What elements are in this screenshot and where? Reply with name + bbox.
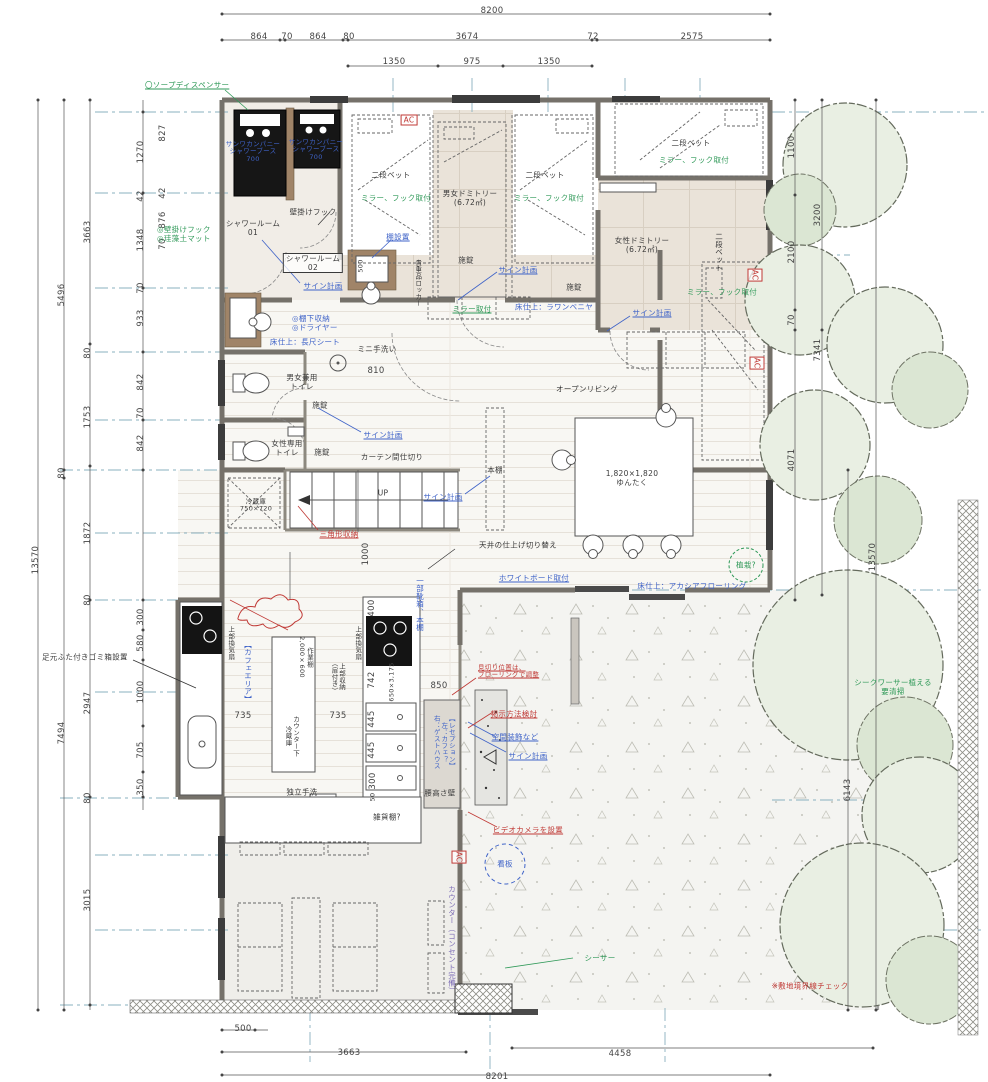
room-shower-01: シャワールーム 01 <box>226 219 280 237</box>
dimension-label: 80 <box>83 347 93 358</box>
note-whiteboard: ホワイトボード取付 <box>499 574 569 583</box>
ac-unit: AC <box>452 851 467 864</box>
dimension-label: 1753 <box>83 406 93 429</box>
furniture-valuables-locker: 貴重品ロッカー <box>413 259 420 307</box>
note-sign-plan: サイン計画 <box>424 493 463 502</box>
stair-up: UP <box>378 489 389 498</box>
note-lock: 施錠 <box>314 448 330 457</box>
floor-plan-canvas: 8200864708648036747225751350975135013570… <box>0 0 988 1082</box>
dimension-label: 80 <box>343 32 354 42</box>
note-sign-plan: サイン計画 <box>633 309 672 318</box>
dimension-label: 1270 <box>136 141 146 164</box>
dimension-label: 975 <box>463 57 480 67</box>
note-lock: 施錠 <box>458 256 474 265</box>
note-curtain-partition: カーテン間仕切り <box>361 453 423 462</box>
dimension-label: 5496 <box>57 284 67 307</box>
note-waist-wall: 腰高さ壁 <box>424 789 455 798</box>
note-lock: 施錠 <box>312 401 328 410</box>
dimension-label: 3674 <box>456 32 479 42</box>
dimension-label: 742 <box>367 671 377 688</box>
note-sign-plan: サイン計画 <box>509 752 548 761</box>
note-signboard: 看板 <box>497 860 513 869</box>
dimension-label: 580 <box>136 634 146 651</box>
note-lock: 施錠 <box>566 283 582 292</box>
note-shoebox-bookshelf: 一部靴箱、本棚 <box>416 577 425 632</box>
furniture-undercounter-fridge: カウンター下 冷蔵庫 <box>284 716 299 757</box>
dimension-label: 70 <box>136 407 146 418</box>
room-womens-dormitory: 女性ドミトリー (6.72㎡) <box>615 236 670 254</box>
note-shisa: シーサー <box>584 954 615 963</box>
note-soap-dispenser: 〇ソープディスペンサー <box>145 81 229 90</box>
dimension-label: 7494 <box>57 722 67 745</box>
dimension-label: 3663 <box>338 1048 361 1058</box>
note-mirror-hook: ミラー、フック取付 <box>361 194 431 203</box>
dimension-label: 850 <box>430 681 447 691</box>
note-floor-sheet: 床仕上：長尺シート <box>270 338 340 347</box>
dimension-label: 300 <box>368 772 378 789</box>
room-shower-02: シャワールーム 02 <box>283 253 343 273</box>
dimension-label: 842 <box>136 373 146 390</box>
ac-unit: AC <box>748 269 763 282</box>
dimension-label: 6143 <box>843 779 853 802</box>
dimension-label: 3663 <box>83 221 93 244</box>
dimension-label: 72 <box>587 32 598 42</box>
furniture-fridge: 冷蔵庫 750×720 <box>240 499 272 514</box>
dimension-label: 864 <box>309 32 326 42</box>
dimension-label: 1350 <box>383 57 406 67</box>
dimension-label: 500 <box>234 1024 251 1034</box>
dimension-label: 1000 <box>136 681 146 704</box>
dimension-label: 705 <box>136 741 146 758</box>
furniture-work-shelf: 作業棚 2,000×600 <box>298 636 313 678</box>
dimension-label: 1100 <box>787 136 797 159</box>
dimension-label: 500 <box>357 259 364 272</box>
dimension-label: 842 <box>136 434 146 451</box>
note-ceiling-finish: 天井の仕上げ切り替え <box>479 541 557 550</box>
note-wall-hook: 壁掛けフック <box>290 208 337 217</box>
note-floor-lauan: 床仕上：ラワンベニヤ <box>515 303 593 312</box>
dimension-label: 400 <box>367 599 377 616</box>
dimension-label: 735 <box>234 711 251 721</box>
dimension-label: 80 <box>83 792 93 803</box>
note-mini-sink: ミニ手洗い <box>358 345 397 354</box>
dimension-label: 80 <box>83 594 93 605</box>
dimension-label: 2100 <box>787 241 797 264</box>
dimension-label: 2575 <box>681 32 704 42</box>
note-standalone-sink: 独立手洗 <box>286 788 317 797</box>
furniture-bookshelf: 本棚 <box>487 466 503 475</box>
note-shower-booth: サンワカンパニー シャワーブース 700 <box>226 141 280 163</box>
dimension-label: 42 <box>136 190 146 201</box>
note-trash-bin: 足元ふた付きゴミ箱設置 <box>42 653 128 662</box>
furniture-goods-shelf: 雑貨棚? <box>373 813 401 822</box>
note-counter-outlets: カウンター（コンセント完備） <box>448 885 457 994</box>
dimension-label: 300 <box>136 608 146 625</box>
note-decoration: 空間装飾など <box>492 733 539 742</box>
dimension-label: 70 <box>281 32 292 42</box>
ac-unit: AC <box>401 115 418 126</box>
dimension-label: 1348 <box>136 229 146 252</box>
furniture-bunk-bed: 二段ベット <box>526 171 565 180</box>
note-planting: 植栽? <box>736 561 756 570</box>
note-floor-acacia: 床仕上：アカシアフローリング <box>637 582 746 591</box>
dimension-label: 827 <box>158 124 168 141</box>
room-mixed-dormitory: 男女ドミトリー (6.72㎡) <box>443 189 498 207</box>
note-video-camera: ビデオカメラを設置 <box>493 826 563 835</box>
note-triangle-storage: 三角形収納 <box>320 530 359 539</box>
dimension-label: 42 <box>158 187 168 198</box>
dimension-label: 445 <box>367 741 377 758</box>
note-sign-plan: サイン計画 <box>304 282 343 291</box>
note-mirror: ミラー取付 <box>453 305 492 314</box>
note-shequasar-tree: シークワーサー植える 要清掃 <box>854 678 932 696</box>
dimension-label: 8201 <box>486 1072 509 1082</box>
furniture-yuntaku-table: 1,820×1,820 ゆんたく <box>606 469 659 487</box>
dimension-label: 50 <box>369 793 376 802</box>
dimension-label: 3200 <box>813 204 823 227</box>
dimension-label: 70 <box>787 314 797 325</box>
dimension-label: 650×3,175 <box>388 662 395 701</box>
dimension-label: 80 <box>57 467 67 478</box>
dimension-label: 7341 <box>813 339 823 362</box>
room-cafe-area: 【カフェエリア】 <box>244 641 253 703</box>
dimension-label: 2947 <box>83 692 93 715</box>
note-sign-plan: サイン計画 <box>499 266 538 275</box>
dimension-label: 810 <box>367 366 384 376</box>
dimension-label: 70 <box>136 282 146 293</box>
dim-top-total: 8200 <box>481 6 504 16</box>
dimension-label: 1000 <box>361 543 371 566</box>
dimension-label: 350 <box>136 778 146 795</box>
note-mirror-hook: ミラー、フック取付 <box>514 194 584 203</box>
note-under-shelf-dryer: ◎棚下収納 ◎ドライヤー <box>292 314 338 332</box>
note-shower-booth: サンワカンパニー シャワーブース 700 <box>289 139 343 161</box>
furniture-bunk-bed: 二段ベット <box>715 233 724 272</box>
note-hook-mat: ◎壁掛けフック ◎珪藻土マット <box>157 225 211 243</box>
dimension-label: 1872 <box>83 522 93 545</box>
dimension-label: 735 <box>329 711 346 721</box>
dim-left-total: 13570 <box>31 546 41 575</box>
room-unisex-toilet: 男女兼用 トイレ <box>286 373 317 391</box>
dimension-label: 4071 <box>787 449 797 472</box>
annotation-layer: 8200864708648036747225751350975135013570… <box>0 0 988 1082</box>
room-womens-toilet: 女性専用 トイレ <box>271 439 302 457</box>
dimension-label: 3015 <box>83 889 93 912</box>
dimension-label: 445 <box>367 710 377 727</box>
dimension-label: 864 <box>250 32 267 42</box>
note-display-method: 掲示方法検討 <box>491 710 538 719</box>
note-mirror-hook: ミラー、フック取付 <box>687 288 757 297</box>
note-shelf: 棚設置 <box>386 233 409 242</box>
note-flooring-joint: 見切り位置は、 フローリングで調整 <box>478 665 539 680</box>
dimension-label: 4458 <box>609 1049 632 1059</box>
room-reception: 【レセプション】 左：カフェ？ 右：ゲストハウス <box>432 715 454 769</box>
room-open-living: オープンリビング <box>556 385 618 394</box>
furniture-bunk-bed: 二段ベット <box>372 171 411 180</box>
note-mirror-hook: ミラー、フック取付 <box>659 156 729 165</box>
dimension-label: 933 <box>136 309 146 326</box>
ac-unit: AC <box>750 357 765 370</box>
note-sign-plan: サイン計画 <box>364 431 403 440</box>
note-vent-fan: 上部換気扇 <box>353 626 360 660</box>
dim-right-total: 13570 <box>868 543 878 572</box>
dimension-label: 1350 <box>538 57 561 67</box>
note-boundary-check: ※敷地境界線チェック <box>772 982 849 991</box>
note-vent-fan: 上部換気扇 <box>226 626 233 660</box>
note-upper-storage: 上部収納 （扉付き） <box>330 660 345 694</box>
furniture-bunk-bed: 二段ベット <box>672 139 711 148</box>
